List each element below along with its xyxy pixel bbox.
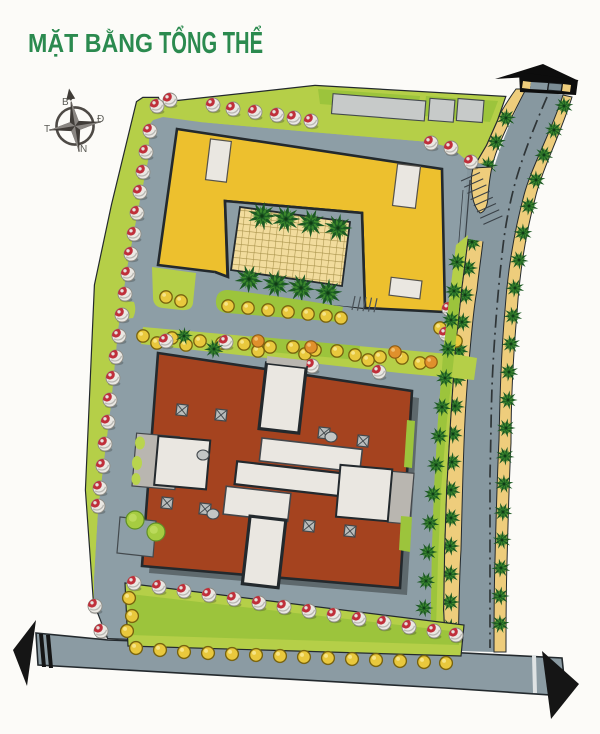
svg-text:N: N (80, 144, 87, 155)
svg-text:TỔNG THỂ: TỔNG THỂ (159, 24, 263, 60)
svg-text:Đ: Đ (97, 114, 104, 125)
svg-text:MẶT BẰNG: MẶT BẰNG (28, 28, 153, 58)
svg-text:T: T (44, 124, 50, 135)
svg-text:B: B (62, 97, 69, 108)
